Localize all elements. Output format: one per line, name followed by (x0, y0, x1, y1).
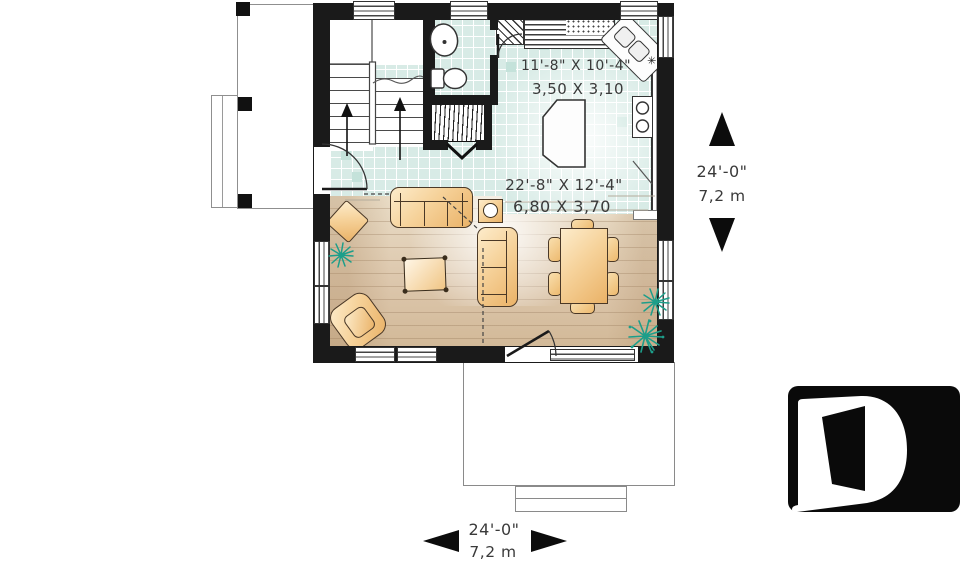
porch-post (238, 194, 252, 208)
window (620, 1, 658, 20)
window (314, 241, 330, 286)
wall-closet-bottom-right (476, 140, 492, 150)
loveseat (477, 227, 518, 307)
down-arrow (709, 218, 735, 252)
deck-step-line (516, 498, 626, 499)
tile-accent (352, 172, 362, 182)
ottoman (403, 257, 446, 291)
wall-bath-right-upper (490, 3, 498, 30)
window (397, 347, 437, 362)
loveseat-arm-line (481, 294, 507, 295)
wall-closet-bottom-left (423, 140, 448, 150)
stair-flight-left (330, 64, 373, 151)
sofa-cushion-line (424, 202, 425, 226)
stair-landing (330, 20, 423, 65)
window (658, 281, 674, 320)
porch-step (211, 95, 238, 208)
side-dim-imperial: 24'-0" (672, 162, 772, 181)
kitchen-dim-metric: 3,50 X 3,10 (512, 80, 644, 98)
window (658, 240, 674, 281)
window (353, 1, 395, 20)
closet-hangers (431, 104, 485, 142)
loveseat-arm-line (481, 240, 507, 241)
bottom-dim-imperial: 24'-0" (434, 520, 554, 539)
loveseat-cushion-line (481, 267, 507, 268)
sofa-cushion-line (447, 202, 448, 226)
window (450, 1, 488, 20)
deck (463, 362, 675, 486)
tile-accent (441, 29, 451, 39)
wall-stair-bath (423, 3, 435, 100)
ottoman-corner (401, 257, 406, 262)
logo-box (788, 386, 960, 512)
living-dim-metric: 6,80 X 3,70 (496, 197, 628, 216)
living-dim-imperial: 22'-8" X 12'-4" (498, 176, 630, 194)
sofa-arm-line (400, 193, 401, 226)
window (314, 286, 330, 324)
sofa (390, 187, 473, 228)
letter-d-logo (788, 386, 960, 512)
wall-bath-right-lower (490, 55, 498, 100)
porch-post (236, 2, 250, 16)
deck-steps (515, 486, 627, 512)
sofa-back-line (394, 201, 468, 202)
up-arrow (709, 112, 735, 146)
dining-table (560, 228, 608, 304)
letter-d-glyph (792, 396, 907, 512)
bottom-dim-metric: 7,2 m (433, 543, 553, 561)
entry-door-opening (314, 147, 330, 194)
tile-accent (341, 150, 351, 160)
window (355, 347, 395, 362)
sofa-arm-line (462, 193, 463, 226)
floor-plan: ✳ (0, 0, 960, 569)
armchair-seat (342, 304, 378, 340)
window (658, 16, 674, 58)
porch-post (238, 97, 252, 111)
patio-door-glass (550, 349, 635, 361)
stove (632, 96, 653, 138)
stair-flight-right (373, 78, 423, 146)
side-dim-metric: 7,2 m (672, 187, 772, 205)
kitchen-dim-imperial: 11'-8" X 10'-4" (510, 58, 642, 74)
